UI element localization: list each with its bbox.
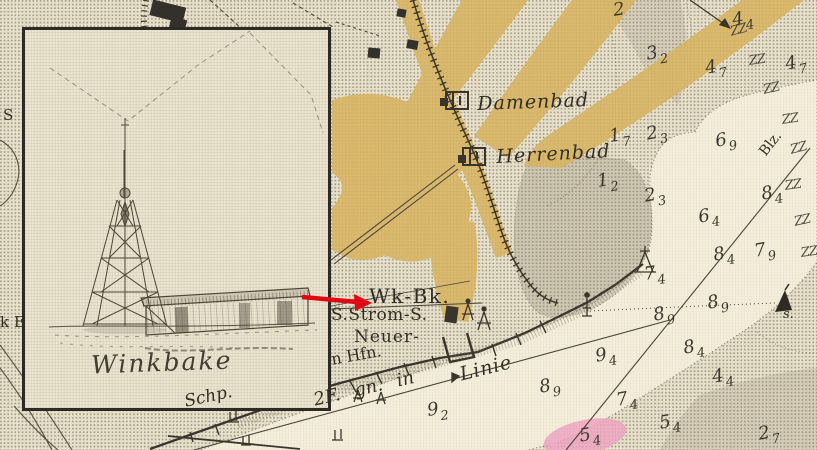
survey-dashes [50, 31, 323, 133]
chart-page: S k E 2443247471723691223648479847489898… [0, 0, 817, 450]
winkbake-inset: Winkbake [22, 27, 331, 411]
tower-shadow [83, 326, 167, 334]
beacon-tower-sketch [83, 118, 167, 326]
shed-sketch [141, 288, 310, 335]
inset-caption: Winkbake [91, 346, 233, 380]
